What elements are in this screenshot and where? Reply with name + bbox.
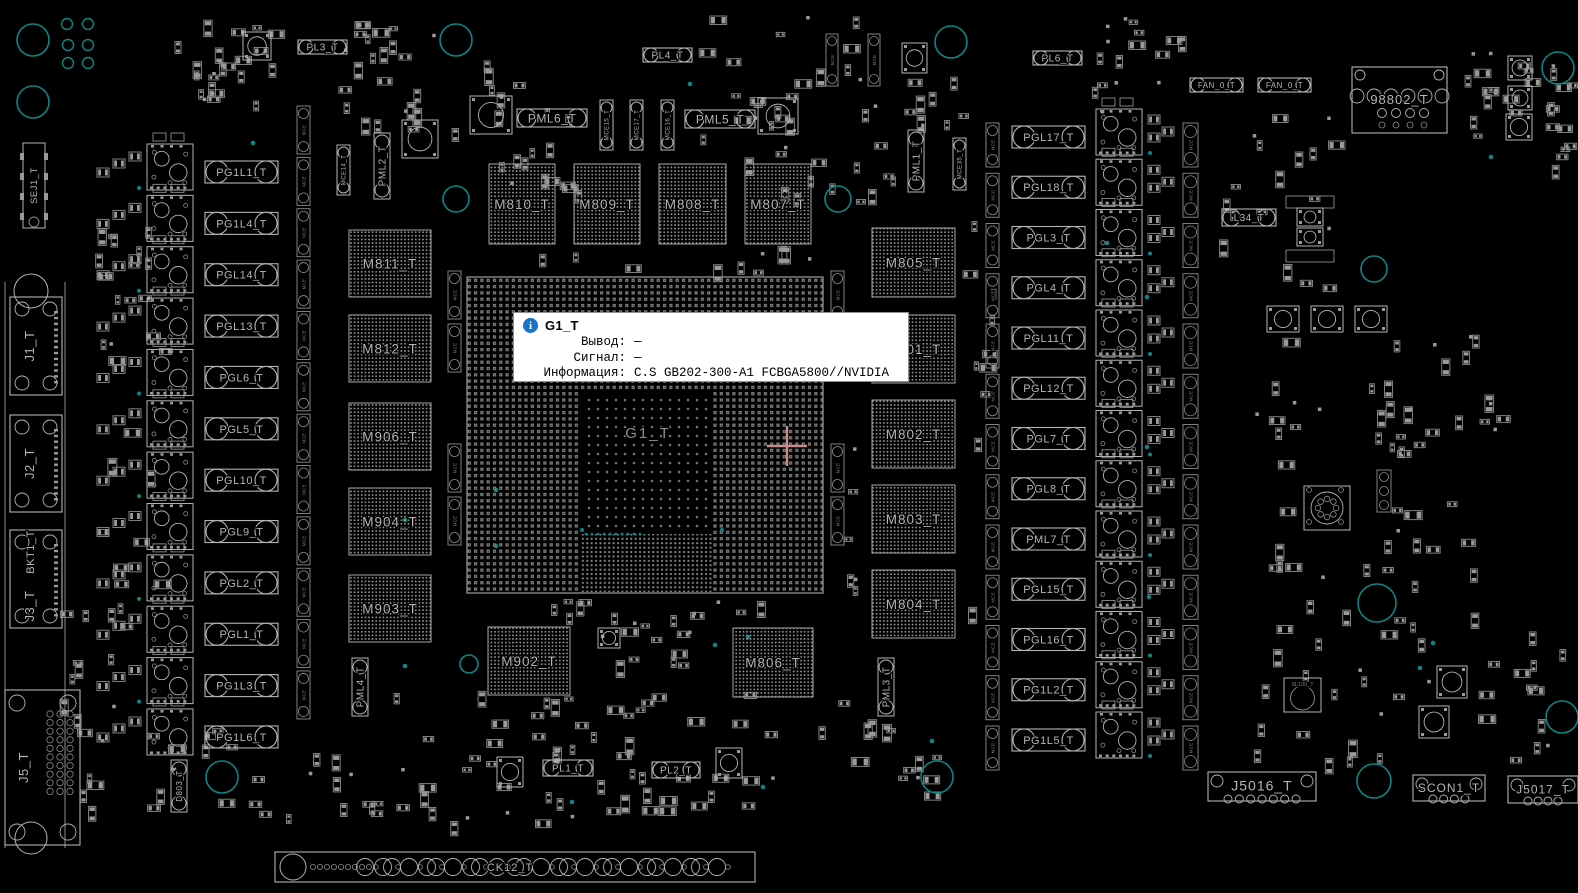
svg-text:MCE: MCE: [990, 743, 995, 754]
svg-text:M808_T: M808_T: [665, 197, 721, 212]
tooltip-row-value: C.S GB202-300-A1 FCBGA5800//NVIDIA: [634, 366, 900, 382]
capacitor: MCE: [297, 260, 310, 308]
capacitor: MCE: [986, 676, 999, 720]
phase-passives: [97, 647, 184, 704]
power-stage[interactable]: [147, 401, 193, 447]
svg-text:MCE: MCE: [301, 433, 306, 444]
svg-text:PG1L3_T: PG1L3_T: [216, 681, 267, 693]
svg-text:M902_T: M902_T: [501, 654, 557, 669]
capacitor: MCE: [1183, 726, 1198, 770]
capacitor: MCE: [1183, 626, 1198, 670]
tooltip-row-value: —: [634, 335, 900, 351]
capacitor: MCE: [1183, 173, 1198, 217]
component-PGL17_T[interactable]: PGL17_T: [1012, 126, 1085, 148]
memory-chip-M806_T[interactable]: M806_T: [733, 628, 813, 697]
svg-text:MCE: MCE: [301, 381, 306, 392]
capacitor: MCE: [1183, 224, 1198, 268]
svg-text:MCE16_T: MCE16_T: [666, 110, 672, 141]
svg-text:D803_T: D803_T: [175, 770, 184, 801]
svg-text:MCE: MCE: [1188, 542, 1193, 553]
svg-text:J3_T: J3_T: [22, 591, 37, 622]
capacitor: MCE: [986, 274, 999, 318]
component-PL4_T[interactable]: PL4_T: [643, 48, 692, 62]
svg-text:MCE: MCE: [872, 55, 877, 66]
connector-J5017_T[interactable]: J5017_T: [1508, 776, 1578, 805]
svg-text:MCE: MCE: [990, 491, 995, 502]
component-PGL5_T[interactable]: PGL5_T: [205, 418, 278, 440]
memory-chip-M810_T[interactable]: M810_T: [489, 164, 555, 244]
svg-text:MCE: MCE: [301, 690, 306, 701]
component-PGL6_T[interactable]: PGL6_T: [205, 366, 278, 388]
tooltip-row: Информация:C.S GB202-300-A1 FCBGA5800//N…: [523, 366, 900, 382]
svg-text:MCE: MCE: [990, 190, 995, 201]
capacitor: MCE: [297, 620, 310, 668]
capacitor: MCE: [448, 497, 461, 545]
svg-text:MCE: MCE: [990, 542, 995, 553]
component-PGL12_T[interactable]: PGL12_T: [1012, 377, 1085, 399]
memory-chip-M809_T[interactable]: M809_T: [574, 164, 640, 244]
passive-cluster: [1092, 17, 1186, 113]
phase-passives: [1102, 199, 1174, 256]
component-PL6_T[interactable]: PL6_T: [1033, 51, 1082, 65]
component-MCE16_T[interactable]: MCE16_T: [661, 100, 674, 150]
svg-text:PGL1_T: PGL1_T: [220, 629, 264, 641]
svg-text:PL4_T: PL4_T: [652, 51, 684, 62]
svg-text:PGL11_T: PGL11_T: [1024, 333, 1074, 345]
component-PGL11_T[interactable]: PGL11_T: [1012, 327, 1085, 349]
connector-SEJ1_T[interactable]: SEJ1_T: [20, 143, 48, 228]
ic-component: [716, 748, 742, 778]
passive-cluster: [175, 20, 285, 111]
power-stage[interactable]: [147, 195, 193, 241]
capacitor: MCE: [1183, 274, 1198, 318]
svg-text:M904_T: M904_T: [362, 515, 418, 530]
power-stage[interactable]: [147, 504, 193, 550]
phase-passives: [97, 441, 184, 498]
svg-text:J5_T: J5_T: [16, 752, 31, 783]
capacitor: MCE: [297, 568, 310, 616]
component-PGL1_T[interactable]: PGL1_T: [205, 623, 278, 645]
svg-text:MCE: MCE: [301, 638, 306, 649]
component-MCE35_T[interactable]: MCE35_T: [953, 138, 966, 190]
component-PG1L2_T[interactable]: PG1L2_T: [1012, 679, 1085, 701]
ic-component: [1311, 306, 1343, 332]
svg-text:PGL8_T: PGL8_T: [1027, 484, 1071, 496]
svg-text:PG1L2_T: PG1L2_T: [1023, 685, 1074, 697]
svg-text:PGL13_T: PGL13_T: [216, 321, 267, 333]
memory-chip-M803_T[interactable]: M803_T: [872, 485, 955, 553]
svg-text:PG1L6_T: PG1L6_T: [216, 732, 267, 744]
svg-text:PGL6_T: PGL6_T: [220, 372, 264, 384]
svg-text:J5016_T: J5016_T: [1231, 778, 1292, 794]
component-SL100_T[interactable]: SL100_T: [1284, 678, 1321, 712]
svg-text:PML2_T: PML2_T: [378, 146, 389, 187]
phase-passives: [1102, 601, 1174, 658]
ic-component: [1419, 706, 1449, 738]
component-FAN_0_T[interactable]: FAN_0_T: [1258, 78, 1311, 92]
svg-text:MCE: MCE: [301, 587, 306, 598]
ic-component: [1437, 666, 1467, 698]
svg-text:J2_T: J2_T: [22, 448, 37, 479]
capacitor: MCE: [297, 311, 310, 359]
memory-chip-M902_T[interactable]: M902_T: [488, 627, 570, 695]
connector-J2_T[interactable]: J2_T: [10, 415, 62, 512]
component-PML7_T[interactable]: PML7_T: [1012, 528, 1085, 550]
svg-text:M906_T: M906_T: [362, 430, 418, 445]
svg-text:PML1_T: PML1_T: [912, 141, 923, 182]
tooltip-rows: Вывод:—Сигнал:—Информация:C.S GB202-300-…: [523, 335, 900, 382]
connector-J3_T[interactable]: BKT1_TJ3_T: [10, 530, 62, 628]
svg-text:MCE: MCE: [990, 441, 995, 452]
capacitor: MCE: [297, 414, 310, 462]
power-stage[interactable]: [1096, 712, 1142, 758]
ic-component: [1267, 306, 1299, 332]
component-PGL16_T[interactable]: PGL16_T: [1012, 629, 1085, 651]
svg-text:PL1_T: PL1_T: [552, 764, 584, 775]
capacitor: MCE: [297, 106, 310, 154]
svg-text:MCE14_T: MCE14_T: [342, 155, 348, 186]
svg-text:MCE: MCE: [990, 642, 995, 653]
svg-text:SCON1_T: SCON1_T: [1418, 781, 1480, 795]
connector-J1_T[interactable]: J1_T: [10, 297, 62, 395]
ic-component: [902, 43, 927, 73]
svg-text:M809_T: M809_T: [579, 197, 635, 212]
component-FAN_0_T[interactable]: FAN_0_T: [1190, 78, 1243, 92]
component-PG1L5_T[interactable]: PG1L5_T: [1012, 729, 1085, 751]
capacitor: MCE: [986, 324, 999, 368]
svg-text:M811_T: M811_T: [363, 257, 418, 272]
power-stage[interactable]: [147, 349, 193, 395]
component-PGL2_T[interactable]: PGL2_T: [205, 572, 278, 594]
ic-component: [1297, 228, 1323, 246]
tooltip-row-value: —: [634, 351, 900, 367]
capacitor: MCE: [831, 444, 844, 492]
component-PGL7_T[interactable]: PGL7_T: [1012, 428, 1085, 450]
svg-text:PGL9_T: PGL9_T: [220, 526, 264, 538]
svg-text:FAN_0_T: FAN_0_T: [1198, 81, 1235, 90]
svg-text:MCE: MCE: [990, 140, 995, 151]
component-PGL10_T[interactable]: PGL10_T: [205, 469, 278, 491]
capacitor: MCE: [448, 324, 461, 372]
power-stage[interactable]: [147, 658, 193, 704]
passive-cluster: [1255, 335, 1510, 592]
capacitor: MCE: [986, 224, 999, 268]
connector-J5016_T[interactable]: J5016_T: [1208, 772, 1316, 803]
svg-text:MCE: MCE: [1188, 140, 1193, 151]
component-PML4_T[interactable]: PML4_T: [352, 658, 368, 716]
capacitor: MCE: [297, 517, 310, 565]
capacitor: MCE: [826, 34, 838, 86]
component-PGL14_T[interactable]: PGL14_T: [205, 264, 278, 286]
ic-component: [1297, 208, 1323, 226]
svg-text:PGL2_T: PGL2_T: [220, 578, 264, 590]
svg-text:98802_T: 98802_T: [1370, 92, 1428, 107]
tooltip-row-label: Информация:: [523, 366, 626, 382]
svg-text:MCE: MCE: [301, 536, 306, 547]
memory-chip-M906_T[interactable]: M906_T: [349, 403, 431, 470]
capacitor: MCE: [1183, 425, 1198, 469]
phase-passives: [1102, 500, 1174, 557]
phase-passives: [1102, 701, 1174, 758]
capacitor: MCE: [1183, 374, 1198, 418]
ic-component: [1508, 86, 1532, 110]
capacitor: MCE: [831, 497, 844, 545]
svg-text:MCE: MCE: [990, 592, 995, 603]
svg-text:L34_T: L34_T: [1234, 213, 1265, 224]
svg-text:MCE: MCE: [1188, 391, 1193, 402]
memory-chip-M904_T[interactable]: M904_T: [349, 488, 431, 555]
ic-component: [497, 757, 523, 787]
capacitor: MCE: [1183, 324, 1198, 368]
phase-passives: [97, 544, 184, 601]
capacitor: MCE: [1183, 475, 1198, 519]
memory-chip-M805_T[interactable]: M805_T: [872, 228, 955, 297]
ic-component: [1355, 306, 1387, 332]
component-tooltip: i G1_T Вывод:—Сигнал:—Информация:C.S GB2…: [513, 312, 909, 382]
svg-text:M807_T: M807_T: [750, 197, 806, 212]
phase-passives: [97, 184, 184, 228]
component-PGL15_T[interactable]: PGL15_T: [1012, 578, 1085, 600]
svg-text:J5017_T: J5017_T: [1516, 783, 1570, 797]
component-PL1_T[interactable]: PL1_T: [543, 760, 593, 776]
svg-text:MCE: MCE: [990, 290, 995, 301]
svg-text:MCE: MCE: [990, 240, 995, 251]
svg-text:MCE: MCE: [452, 463, 457, 474]
capacitor: MCE: [986, 525, 999, 569]
phase-passives: [97, 698, 184, 742]
component-MCE14_T[interactable]: MCE14_T: [337, 145, 350, 195]
phase-passives: [97, 133, 184, 190]
component-PML1_T[interactable]: PML1_T: [908, 130, 924, 192]
svg-text:MCE: MCE: [1188, 642, 1193, 653]
svg-text:MCE: MCE: [1188, 743, 1193, 754]
phase-passives: [97, 595, 184, 639]
svg-text:M805_T: M805_T: [886, 256, 942, 271]
svg-text:M803_T: M803_T: [886, 512, 942, 527]
svg-text:MCE: MCE: [1188, 441, 1193, 452]
svg-text:MCE: MCE: [1188, 341, 1193, 352]
component-MCE15_T[interactable]: MCE15_T: [600, 100, 613, 150]
phase-passives: [97, 390, 184, 434]
connector-SCON1_T[interactable]: SCON1_T: [1413, 775, 1485, 803]
phase-passives: [97, 236, 184, 293]
svg-text:PG1L1_T: PG1L1_T: [216, 167, 267, 179]
capacitor: MCE: [986, 626, 999, 670]
capacitor: MCE: [297, 363, 310, 411]
component-PGL3_T[interactable]: PGL3_T: [1012, 227, 1085, 249]
memory-chip-M802_T[interactable]: M802_T: [872, 400, 955, 468]
phase-passives: [1102, 400, 1174, 457]
power-stage[interactable]: [147, 247, 193, 293]
component-PL3_T[interactable]: PL3_T: [298, 40, 347, 54]
capacitor: MCE: [448, 444, 461, 492]
svg-text:PGL17_T: PGL17_T: [1023, 132, 1074, 144]
ring-strip: [1377, 470, 1391, 512]
component-PG1L4_T[interactable]: PG1L4_T: [205, 212, 278, 234]
round-connector: [1304, 486, 1350, 530]
svg-text:MCE: MCE: [452, 343, 457, 354]
memory-chip-M903_T[interactable]: M903_T: [349, 575, 431, 642]
svg-text:MCE35_T: MCE35_T: [958, 149, 964, 180]
svg-text:MCE: MCE: [830, 55, 835, 66]
power-stage[interactable]: [147, 298, 193, 344]
connector-J5_T[interactable]: J5_T: [5, 690, 80, 845]
svg-text:MCE: MCE: [990, 692, 995, 703]
ic-component: [243, 32, 271, 60]
passive-cluster: [1219, 115, 1345, 292]
memory-chip-M804_T[interactable]: M804_T: [872, 570, 955, 638]
connector-CK12_T[interactable]: CK12_T: [275, 852, 755, 882]
svg-text:MCE: MCE: [452, 516, 457, 527]
svg-text:PGL16_T: PGL16_T: [1023, 634, 1074, 646]
component-PGL18_T[interactable]: PGL18_T: [1012, 176, 1085, 198]
passive-cluster: [905, 77, 969, 132]
svg-text:PL2_T: PL2_T: [660, 766, 692, 777]
svg-text:M802_T: M802_T: [886, 427, 942, 442]
capacitor: MCE: [1183, 123, 1198, 167]
svg-text:MCE: MCE: [1188, 240, 1193, 251]
svg-text:FAN_0_T: FAN_0_T: [1266, 81, 1303, 90]
capacitor: MCE: [986, 374, 999, 418]
capacitor: MCE: [1183, 575, 1198, 619]
phase-passives: [1102, 299, 1174, 356]
capacitor: MCE: [448, 271, 461, 319]
memory-chip-M812_T[interactable]: M812_T: [349, 315, 431, 382]
svg-text:MCE: MCE: [1188, 190, 1193, 201]
svg-text:MCE: MCE: [1188, 290, 1193, 301]
passive-cluster: [963, 222, 997, 624]
svg-text:MCE17_T: MCE17_T: [635, 110, 641, 141]
capacitor: MCE: [986, 425, 999, 469]
svg-text:PML6_T: PML6_T: [528, 111, 577, 125]
tooltip-row-label: Вывод:: [523, 335, 626, 351]
svg-text:M810_T: M810_T: [494, 197, 550, 212]
svg-text:M903_T: M903_T: [362, 602, 418, 617]
memory-chip-M811_T[interactable]: M811_T: [349, 230, 431, 297]
svg-text:PGL18_T: PGL18_T: [1023, 182, 1074, 194]
component-PGL8_T[interactable]: PGL8_T: [1012, 478, 1085, 500]
capacitor: MCE: [986, 726, 999, 770]
capacitor: MCE: [868, 34, 880, 86]
memory-chip-M807_T[interactable]: M807_T: [745, 164, 811, 244]
svg-text:PML5_T: PML5_T: [696, 112, 745, 126]
capacitor: MCE: [986, 123, 999, 167]
svg-text:MCE: MCE: [990, 391, 995, 402]
tooltip-row-label: Сигнал:: [523, 351, 626, 367]
svg-text:M812_T: M812_T: [362, 342, 418, 357]
svg-text:PGL12_T: PGL12_T: [1023, 383, 1074, 395]
pcb-board-canvas[interactable]: MCEMCEMCEMCEMCEMCEMCEMCEMCEMCEMCEMCEMCEM…: [0, 0, 1578, 893]
svg-text:PGL5_T: PGL5_T: [220, 424, 264, 436]
svg-text:MCE: MCE: [990, 341, 995, 352]
svg-text:PGL15_T: PGL15_T: [1023, 584, 1074, 596]
connector-98802_T[interactable]: 98802_T: [1350, 67, 1449, 133]
svg-text:M806_T: M806_T: [745, 656, 801, 671]
capacitor: MCE: [986, 475, 999, 519]
capacitor: MCE: [1183, 525, 1198, 569]
svg-text:MCE: MCE: [452, 290, 457, 301]
component-PGL9_T[interactable]: PGL9_T: [205, 521, 278, 543]
ic-component: [1506, 114, 1532, 140]
component-PG1L6_T[interactable]: PG1L6_T: [205, 726, 278, 748]
capacitor: MCE: [1183, 676, 1198, 720]
component-PML3_T[interactable]: PML3_T: [878, 658, 894, 716]
svg-text:MCE: MCE: [1188, 592, 1193, 603]
svg-text:PML7_T: PML7_T: [1026, 534, 1071, 546]
passive-cluster: [249, 753, 383, 823]
phase-passives: [1102, 98, 1174, 155]
phase-passives: [97, 287, 184, 331]
capacitor: MCE: [986, 575, 999, 619]
component-PG1L1_T[interactable]: PG1L1_T: [205, 161, 278, 183]
svg-text:PGL10_T: PGL10_T: [216, 475, 267, 487]
svg-text:PG1L4_T: PG1L4_T: [216, 218, 267, 230]
svg-text:MCE: MCE: [1188, 491, 1193, 502]
svg-text:MCE: MCE: [835, 516, 840, 527]
svg-text:J1_T: J1_T: [22, 331, 37, 362]
svg-text:MCE: MCE: [301, 176, 306, 187]
capacitor: MCE: [297, 466, 310, 514]
component-MCE17_T[interactable]: MCE17_T: [630, 100, 643, 150]
boardview-stage: MCEMCEMCEMCEMCEMCEMCEMCEMCEMCEMCEMCEMCEM…: [0, 0, 1578, 893]
svg-text:PML4_T: PML4_T: [356, 667, 367, 708]
svg-text:PL3_T: PL3_T: [307, 43, 339, 54]
svg-text:MCE: MCE: [301, 279, 306, 290]
power-stage[interactable]: [147, 555, 193, 601]
phase-passives: [97, 338, 184, 395]
memory-chip-M808_T[interactable]: M808_T: [659, 164, 726, 244]
svg-text:SEJ1_T: SEJ1_T: [29, 167, 40, 204]
component-PG1L3_T[interactable]: PG1L3_T: [205, 675, 278, 697]
capacitor: MCE: [297, 209, 310, 257]
component-PGL13_T[interactable]: PGL13_T: [205, 315, 278, 337]
component-PGL4_T[interactable]: PGL4_T: [1012, 277, 1085, 299]
svg-text:MCE: MCE: [301, 484, 306, 495]
svg-text:PGL14_T: PGL14_T: [216, 270, 267, 282]
svg-text:M804_T: M804_T: [886, 597, 942, 612]
svg-text:PGL3_T: PGL3_T: [1027, 232, 1071, 244]
svg-text:PL6_T: PL6_T: [1042, 54, 1074, 65]
capacitor: MCE: [986, 173, 999, 217]
svg-text:MCE: MCE: [301, 227, 306, 238]
svg-text:MCE: MCE: [301, 330, 306, 341]
ic-component: [470, 96, 512, 134]
power-stage[interactable]: [147, 144, 193, 190]
svg-text:CK12_T: CK12_T: [487, 862, 533, 874]
svg-text:MCE15_T: MCE15_T: [605, 110, 611, 141]
svg-text:PG1L5_T: PG1L5_T: [1023, 735, 1074, 747]
power-stage[interactable]: [147, 606, 193, 652]
svg-text:BKT1_T: BKT1_T: [25, 530, 37, 573]
board-components[interactable]: PG1L1_TPG1L4_TPGL14_TPGL13_TPGL6_TPGL5_T…: [5, 40, 1578, 882]
svg-text:PGL7_T: PGL7_T: [1027, 433, 1071, 445]
component-PML2_T[interactable]: PML2_T: [374, 133, 390, 199]
tooltip-component-designator: G1_T: [545, 318, 579, 333]
svg-text:MCE: MCE: [1188, 692, 1193, 703]
passive-cluster: [1552, 64, 1578, 179]
component-PL2_T[interactable]: PL2_T: [652, 762, 700, 778]
capacitor: MCE: [297, 157, 310, 205]
svg-text:PGL4_T: PGL4_T: [1027, 283, 1071, 295]
svg-text:MCE: MCE: [835, 463, 840, 474]
svg-text:G1_T: G1_T: [625, 425, 671, 442]
component-PML6_T[interactable]: PML6_T: [517, 109, 587, 127]
svg-text:MCE: MCE: [835, 290, 840, 301]
svg-text:SL100_T: SL100_T: [1291, 682, 1314, 688]
phase-passives: [97, 493, 184, 537]
svg-text:MCE: MCE: [301, 125, 306, 136]
info-icon: i: [523, 318, 538, 333]
